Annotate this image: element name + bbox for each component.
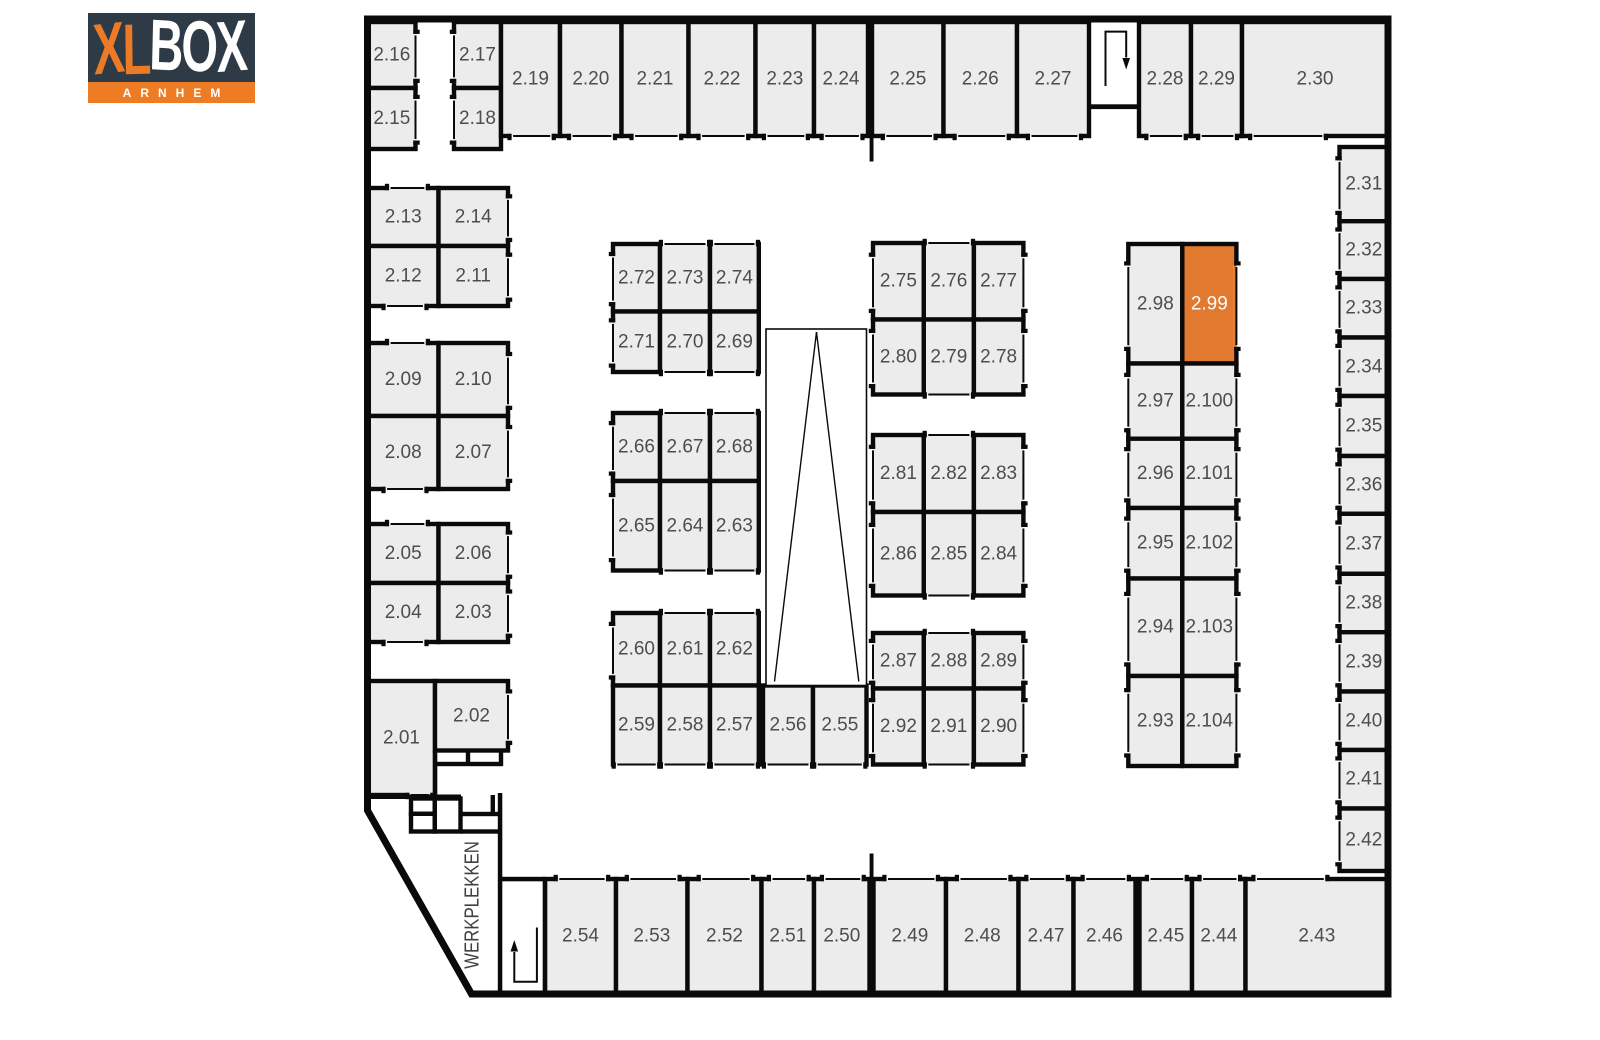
svg-text:2.39: 2.39 [1345,651,1382,672]
svg-text:2.81: 2.81 [880,463,917,484]
svg-text:2.71: 2.71 [618,331,655,352]
svg-text:2.75: 2.75 [880,271,917,292]
svg-text:2.37: 2.37 [1345,533,1382,554]
svg-text:2.88: 2.88 [930,650,967,671]
svg-text:2.76: 2.76 [930,271,967,292]
svg-text:2.30: 2.30 [1297,69,1334,90]
svg-text:2.61: 2.61 [667,639,704,660]
svg-text:2.54: 2.54 [562,926,599,947]
svg-text:2.72: 2.72 [618,267,655,288]
svg-text:2.33: 2.33 [1345,298,1382,319]
svg-text:2.12: 2.12 [385,266,422,287]
svg-text:2.24: 2.24 [823,69,860,90]
svg-text:2.07: 2.07 [455,442,492,463]
svg-text:2.104: 2.104 [1186,711,1234,732]
svg-text:2.97: 2.97 [1137,391,1174,412]
svg-text:2.103: 2.103 [1186,617,1234,638]
svg-text:2.102: 2.102 [1186,533,1234,554]
svg-text:2.21: 2.21 [637,69,674,90]
svg-text:2.47: 2.47 [1028,926,1065,947]
svg-text:2.90: 2.90 [980,716,1017,737]
svg-text:2.64: 2.64 [667,515,704,536]
svg-text:2.35: 2.35 [1345,416,1382,437]
svg-text:2.02: 2.02 [453,705,490,726]
svg-text:2.99: 2.99 [1191,293,1228,314]
svg-text:2.86: 2.86 [880,543,917,564]
svg-text:2.98: 2.98 [1137,293,1174,314]
svg-text:2.67: 2.67 [667,437,704,458]
svg-text:2.52: 2.52 [706,926,743,947]
svg-text:2.23: 2.23 [766,69,803,90]
svg-text:2.89: 2.89 [980,650,1017,671]
svg-text:2.09: 2.09 [385,369,422,390]
svg-text:2.46: 2.46 [1086,926,1123,947]
svg-text:2.56: 2.56 [770,715,807,736]
svg-text:2.50: 2.50 [823,926,860,947]
svg-text:2.100: 2.100 [1186,391,1234,412]
svg-text:2.16: 2.16 [373,45,410,66]
svg-text:2.77: 2.77 [980,271,1017,292]
svg-text:2.13: 2.13 [385,207,422,228]
svg-text:2.01: 2.01 [383,728,420,749]
svg-text:2.22: 2.22 [704,69,741,90]
svg-text:2.17: 2.17 [459,45,496,66]
svg-text:2.84: 2.84 [980,543,1017,564]
svg-text:2.96: 2.96 [1137,463,1174,484]
svg-text:2.48: 2.48 [964,926,1001,947]
svg-text:2.28: 2.28 [1147,69,1184,90]
svg-text:2.87: 2.87 [880,650,917,671]
svg-text:2.03: 2.03 [455,602,492,623]
svg-text:2.101: 2.101 [1186,463,1234,484]
svg-text:2.58: 2.58 [667,715,704,736]
svg-text:2.43: 2.43 [1298,926,1335,947]
svg-text:2.42: 2.42 [1345,829,1382,850]
svg-text:2.79: 2.79 [930,347,967,368]
svg-text:2.25: 2.25 [889,69,926,90]
svg-text:2.51: 2.51 [769,926,806,947]
svg-text:2.82: 2.82 [930,463,967,484]
svg-text:2.31: 2.31 [1345,174,1382,195]
svg-text:2.91: 2.91 [930,716,967,737]
svg-text:2.41: 2.41 [1345,769,1382,790]
svg-text:2.59: 2.59 [618,715,655,736]
svg-text:2.49: 2.49 [891,926,928,947]
svg-text:2.63: 2.63 [716,515,753,536]
svg-text:2.93: 2.93 [1137,711,1174,732]
svg-text:2.95: 2.95 [1137,533,1174,554]
svg-text:2.60: 2.60 [618,639,655,660]
svg-text:2.05: 2.05 [385,543,422,564]
svg-text:2.65: 2.65 [618,515,655,536]
svg-text:2.66: 2.66 [618,437,655,458]
svg-text:2.29: 2.29 [1198,69,1235,90]
svg-text:2.45: 2.45 [1147,926,1184,947]
svg-text:2.55: 2.55 [821,715,858,736]
svg-text:2.94: 2.94 [1137,617,1174,638]
svg-text:2.53: 2.53 [633,926,670,947]
svg-text:2.69: 2.69 [716,331,753,352]
svg-text:2.80: 2.80 [880,347,917,368]
svg-text:2.10: 2.10 [455,369,492,390]
svg-text:2.32: 2.32 [1345,240,1382,261]
svg-text:2.78: 2.78 [980,347,1017,368]
svg-text:2.06: 2.06 [455,543,492,564]
svg-text:2.14: 2.14 [455,207,492,228]
svg-text:2.92: 2.92 [880,716,917,737]
svg-text:2.57: 2.57 [716,715,753,736]
svg-text:2.40: 2.40 [1345,710,1382,731]
svg-text:2.62: 2.62 [716,639,753,660]
svg-text:2.11: 2.11 [455,266,491,287]
svg-text:2.83: 2.83 [980,463,1017,484]
svg-text:2.73: 2.73 [667,267,704,288]
svg-text:2.34: 2.34 [1345,356,1382,377]
svg-text:2.38: 2.38 [1345,593,1382,614]
svg-text:WERKPLEKKEN: WERKPLEKKEN [460,841,483,969]
svg-text:2.20: 2.20 [572,69,609,90]
svg-text:2.44: 2.44 [1200,926,1237,947]
svg-text:2.08: 2.08 [385,442,422,463]
svg-text:2.18: 2.18 [459,108,496,129]
svg-text:2.36: 2.36 [1345,474,1382,495]
svg-text:2.04: 2.04 [385,602,422,623]
svg-text:2.27: 2.27 [1035,69,1072,90]
svg-text:2.19: 2.19 [512,69,549,90]
svg-text:2.85: 2.85 [930,543,967,564]
svg-text:2.70: 2.70 [667,331,704,352]
svg-text:2.26: 2.26 [962,69,999,90]
svg-text:2.74: 2.74 [716,267,753,288]
svg-text:2.68: 2.68 [716,437,753,458]
svg-text:2.15: 2.15 [373,108,410,129]
